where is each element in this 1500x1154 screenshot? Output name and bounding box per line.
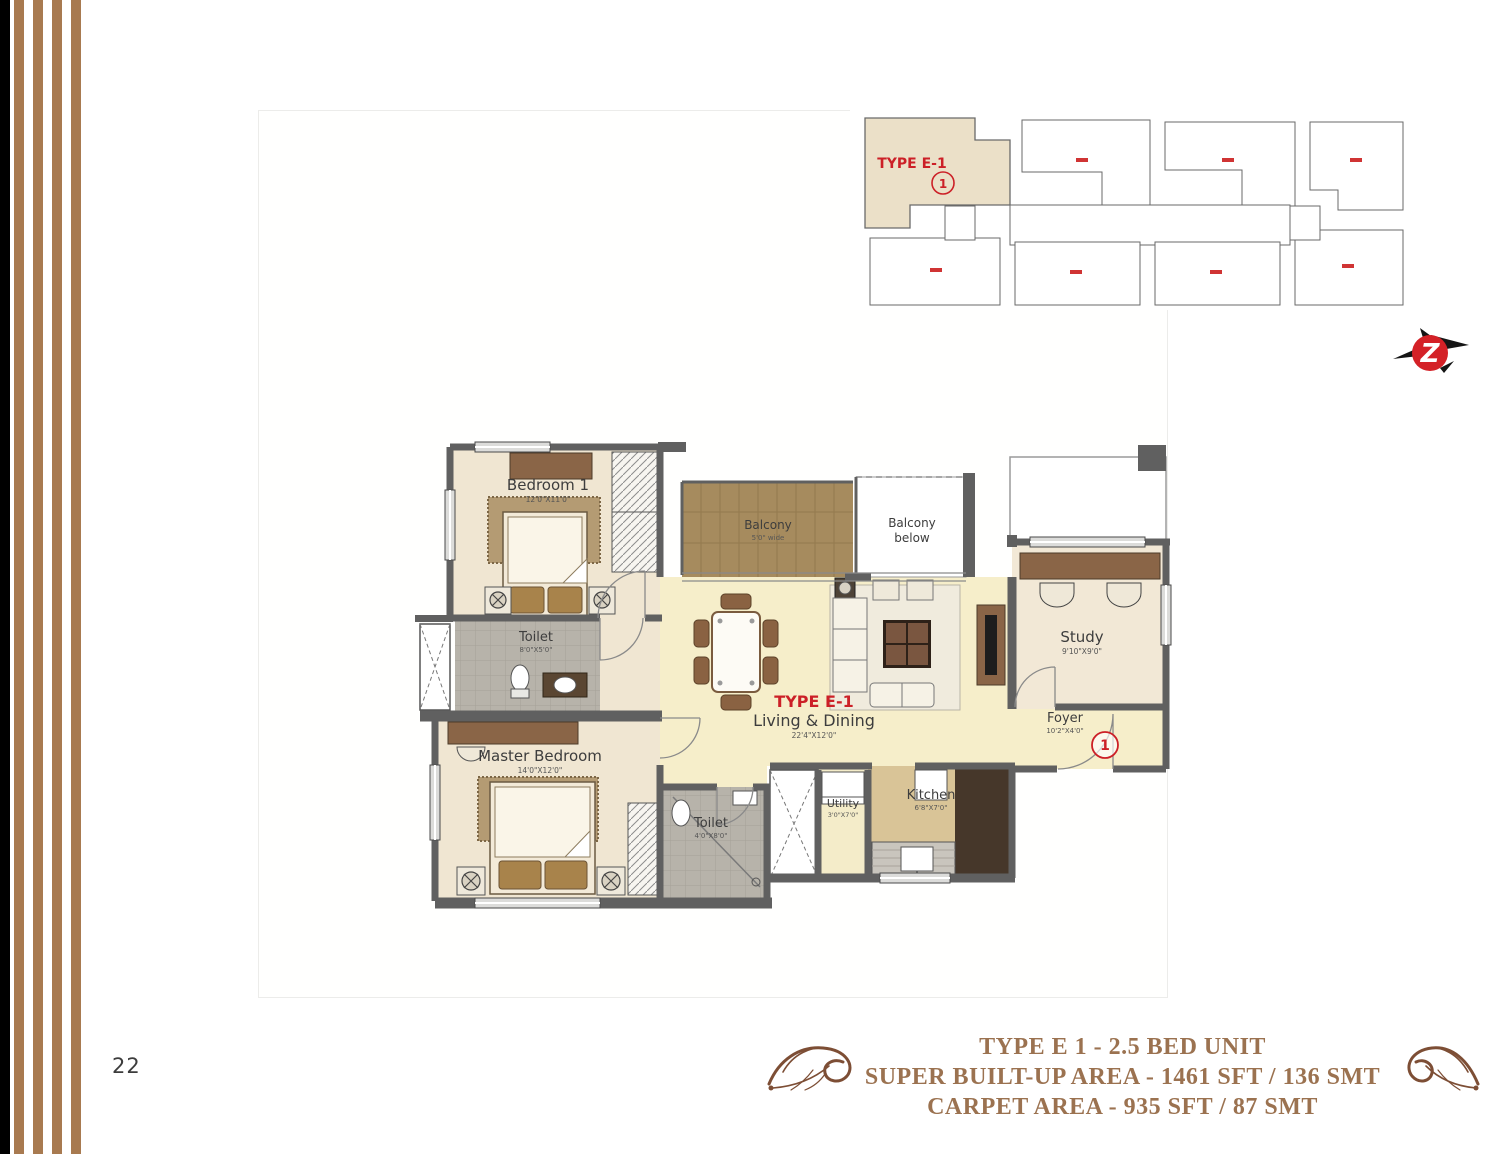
bedroom-lobby-floor: [600, 618, 660, 714]
unit-summary-line1: TYPE E 1 - 2.5 BED UNIT: [850, 1032, 1395, 1062]
living-dining-label: Living & Dining: [753, 711, 875, 730]
unit-summary: TYPE E 1 - 2.5 BED UNIT SUPER BUILT-UP A…: [850, 1032, 1395, 1122]
sofa-loveseat: [870, 683, 934, 707]
left-edge-bar: [0, 0, 10, 1154]
stripe-2: [33, 0, 43, 1154]
balcony-dim: 5'0" wide: [752, 534, 785, 542]
key-plan-unit-label: TYPE E-1: [877, 156, 947, 172]
toilet1-label: Toilet: [518, 630, 553, 645]
stripe-4: [71, 0, 81, 1154]
study-dim: 9'10"X9'0": [1062, 647, 1102, 656]
foyer-dim: 10'2"X4'0": [1046, 727, 1083, 735]
brochure-page: TYPE E-1 1 Z: [0, 0, 1500, 1154]
utility-label: Utility: [827, 797, 860, 810]
shaft-center: [770, 770, 818, 878]
unit-number: 1: [1100, 738, 1110, 754]
unit-summary-line2: SUPER BUILT-UP AREA - 1461 SFT / 136 SMT: [850, 1062, 1395, 1092]
kitchen-sink: [901, 847, 933, 871]
key-plan-unit-number: 1: [939, 177, 947, 191]
brand-logo: Z: [1393, 315, 1473, 387]
bedroom1-dim: 12'0"X11'0": [526, 495, 571, 504]
shaft-left: [420, 624, 450, 710]
floor-plan: Bedroom 1 12'0"X11'0" Toilet 8'0"X5'0" M…: [415, 435, 1175, 925]
master-bedroom-label: Master Bedroom: [478, 747, 602, 765]
master-wardrobe: [628, 803, 658, 895]
master-bed-icon: [490, 782, 595, 894]
bedroom1-bed-icon: [503, 512, 587, 618]
coffee-table: [883, 620, 931, 668]
balcony-below-label-line2: below: [894, 531, 930, 545]
master-bedroom-dim: 14'0"X12'0": [518, 766, 563, 775]
dining-table: [712, 612, 760, 692]
kitchen-label: Kitchen: [907, 788, 956, 803]
unit-type-label: TYPE E-1: [774, 692, 853, 711]
utility-dim: 3'0"X7'0": [828, 811, 859, 819]
study-desk: [1020, 553, 1160, 579]
logo-letter: Z: [1420, 339, 1441, 369]
unit-summary-line3: CARPET AREA - 935 SFT / 87 SMT: [850, 1092, 1395, 1122]
toilet2-dim: 4'0"X8'0": [695, 832, 728, 840]
study-label: Study: [1060, 628, 1103, 646]
key-plan: TYPE E-1 1: [850, 110, 1420, 310]
ottoman-2: [907, 580, 933, 600]
toilet2-label: Toilet: [693, 816, 728, 831]
living-dining-dim: 22'4"X12'0": [792, 731, 837, 740]
foyer-label: Foyer: [1047, 711, 1084, 726]
balcony-label: Balcony: [744, 518, 792, 532]
ottoman-1: [873, 580, 899, 600]
flourish-right-icon: [1382, 1026, 1482, 1098]
balcony-below-label-line1: Balcony: [888, 516, 936, 530]
kitchen-dark-floor: [955, 766, 1012, 878]
tv-unit: [977, 605, 1005, 685]
master-dresser: [448, 722, 578, 744]
page-number: 22: [112, 1054, 141, 1078]
kitchen-dim: 6'8"X7'0": [915, 804, 948, 812]
bedroom1-label: Bedroom 1: [507, 476, 589, 494]
sofa-main: [833, 598, 867, 692]
stripe-1: [14, 0, 24, 1154]
stripe-3: [52, 0, 62, 1154]
toilet1-dim: 8'0"X5'0": [520, 646, 553, 654]
